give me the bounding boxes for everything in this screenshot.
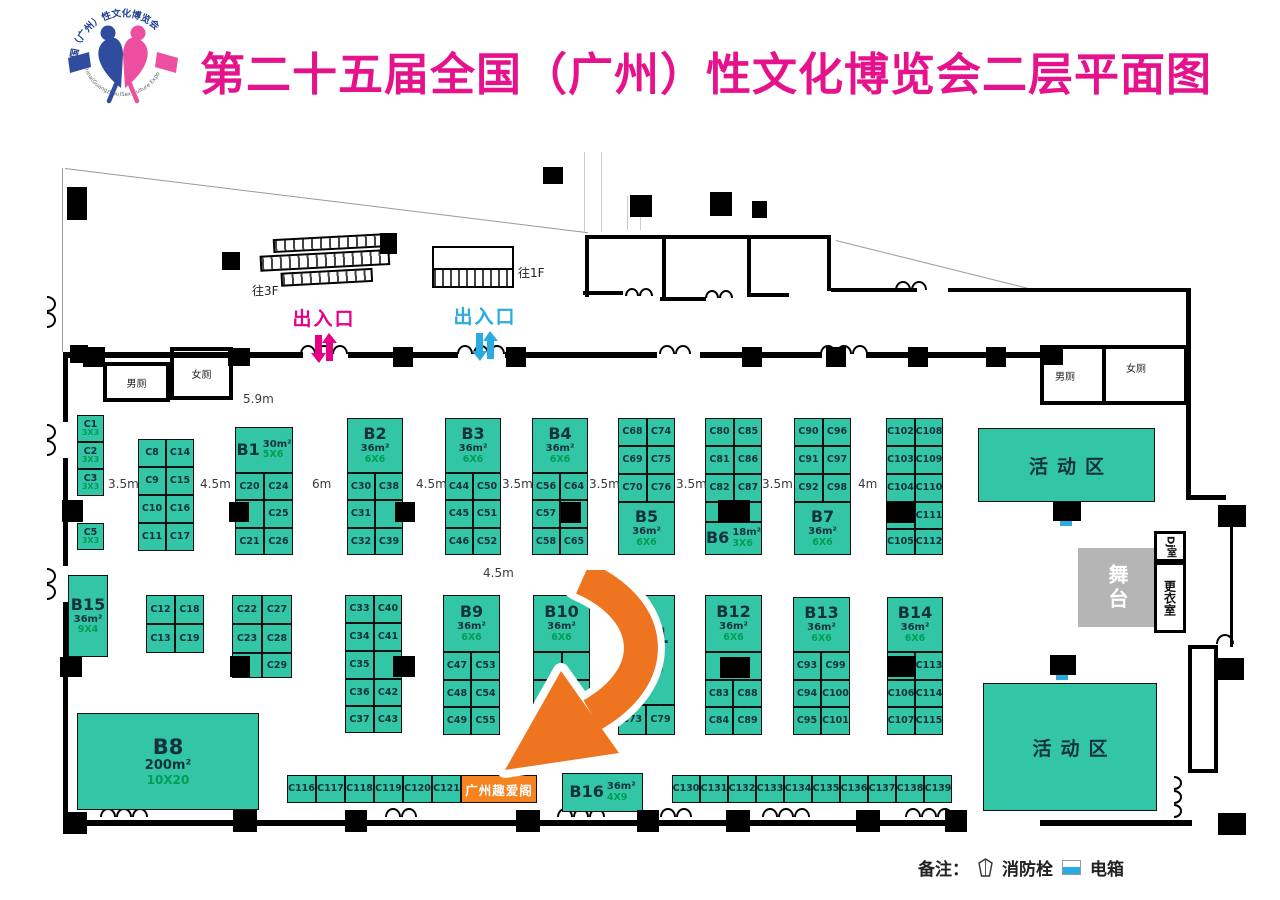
dimension-label: 4m xyxy=(858,477,877,491)
booth-C118: C118 xyxy=(345,775,374,803)
booth-C116: C116 xyxy=(287,775,316,803)
dimension-label: 6m xyxy=(312,477,331,491)
stairs-to-3f-label: 往3F xyxy=(252,282,279,299)
pillar xyxy=(856,810,880,832)
wall-segment xyxy=(747,235,751,297)
booth-C37: C37 xyxy=(345,706,374,733)
booth-C93: C93 xyxy=(793,652,821,680)
changing-room: 更衣室 xyxy=(1154,562,1186,633)
dimension-label: 3.5m xyxy=(589,477,620,491)
booth-C43: C43 xyxy=(374,706,402,733)
booth-C108: C108 xyxy=(915,418,943,446)
booth-C86: C86 xyxy=(734,446,762,474)
booth-C85: C85 xyxy=(734,418,762,446)
pillar xyxy=(222,252,240,270)
booth-C134: C134 xyxy=(784,775,812,803)
activity-area: 活动区 xyxy=(978,428,1155,502)
electric-box-icon xyxy=(1062,860,1081,875)
booth-B2: B236m²6X6 xyxy=(347,418,403,473)
door-arc xyxy=(762,808,778,817)
activity-area: 活动区 xyxy=(983,683,1157,811)
door-arc xyxy=(47,296,56,312)
door-arc xyxy=(659,345,675,354)
pillar xyxy=(726,810,750,832)
dimension-label: 3.5m xyxy=(676,477,707,491)
booth-C70: C70 xyxy=(618,474,647,502)
electric-box-marker xyxy=(1056,675,1068,680)
wall-line xyxy=(65,168,588,233)
wall-segment xyxy=(662,235,666,301)
booth-C10: C10 xyxy=(138,495,166,523)
booth-C92: C92 xyxy=(794,474,823,502)
door-arc xyxy=(1174,776,1182,790)
booth-C12: C12 xyxy=(146,595,175,624)
toilet-label: 男厕 xyxy=(127,375,147,390)
booth-C27: C27 xyxy=(262,595,292,624)
wall-segment xyxy=(1186,495,1226,500)
toilet-women-right-label: 女厕 xyxy=(1126,360,1146,375)
booth-C56: C56 xyxy=(532,473,560,500)
wall-line xyxy=(836,240,1034,290)
booth-C30: C30 xyxy=(347,473,375,500)
booth-C138: C138 xyxy=(896,775,924,803)
booth-B14: B1436m²6X6 xyxy=(887,597,943,652)
pillar xyxy=(986,347,1006,367)
booth-C69: C69 xyxy=(618,446,647,474)
wall-segment xyxy=(63,352,68,422)
pillar xyxy=(630,195,652,217)
booth-C23: C23 xyxy=(232,624,262,653)
booth-C9: C9 xyxy=(138,467,166,495)
booth-B15: B1536m²9X4 xyxy=(68,575,108,657)
wall-segment xyxy=(747,293,789,297)
booth-C42: C42 xyxy=(374,679,402,706)
pillar xyxy=(228,348,250,366)
booth-C106: C106 xyxy=(887,680,915,707)
door-arc xyxy=(401,808,417,817)
door-arc xyxy=(911,281,927,290)
door-arcs xyxy=(895,281,927,290)
booth-C46: C46 xyxy=(445,528,473,555)
pillar xyxy=(380,233,397,254)
booth-B1: B130m²5X6 xyxy=(235,427,293,473)
booth-C11: C11 xyxy=(138,523,166,551)
booth-C19: C19 xyxy=(175,624,204,653)
pillar xyxy=(561,502,581,523)
dimension-label: 4.5m xyxy=(416,477,447,491)
booth-C91: C91 xyxy=(794,446,823,474)
booth-C52: C52 xyxy=(473,528,501,555)
booth-C33: C33 xyxy=(345,595,374,623)
pillar xyxy=(1218,813,1246,835)
booth-C15: C15 xyxy=(166,467,194,495)
pillar xyxy=(1053,502,1081,521)
toilet-men-left: 男厕 xyxy=(103,362,170,402)
booth-C135: C135 xyxy=(812,775,840,803)
wall-segment xyxy=(1102,345,1106,405)
pillar xyxy=(720,657,750,678)
door-arc xyxy=(1216,634,1234,644)
wall-segment xyxy=(1230,527,1233,647)
booth-C83: C83 xyxy=(705,680,733,707)
pillar xyxy=(752,201,767,218)
booth-C75: C75 xyxy=(647,446,675,474)
booth-C17: C17 xyxy=(166,523,194,551)
pillar xyxy=(229,502,249,522)
door-arc xyxy=(794,808,810,817)
booth-B12: B1236m²6X6 xyxy=(705,595,762,652)
booth-C57: C57 xyxy=(532,500,560,528)
wall-segment xyxy=(1040,820,1190,826)
booth-C76: C76 xyxy=(647,474,675,502)
booth-C38: C38 xyxy=(375,473,403,500)
wall-segment xyxy=(505,352,657,358)
booth-C132: C132 xyxy=(728,775,756,803)
booth-C101: C101 xyxy=(821,707,850,735)
booth-C139: C139 xyxy=(924,775,952,803)
booth-C32: C32 xyxy=(347,528,375,555)
wall-segment xyxy=(585,235,589,297)
entrance-left-arrow-icon xyxy=(311,331,337,365)
toilet-men-right-label: 男厕 xyxy=(1055,368,1075,383)
floor-plan-canvas: 全国（广州）性文化博览会 China(Guangzhou)Sex Culture… xyxy=(0,0,1280,900)
booth-C133: C133 xyxy=(756,775,784,803)
wall-line xyxy=(627,196,628,230)
pillar xyxy=(637,810,659,832)
pillar xyxy=(63,812,87,834)
booth-B5: B536m²6X6 xyxy=(618,502,675,555)
booth-C20: C20 xyxy=(235,473,264,500)
booth-C98: C98 xyxy=(823,474,851,502)
wall-segment xyxy=(866,352,1040,358)
booth-C39: C39 xyxy=(375,528,403,555)
pillar xyxy=(516,810,540,832)
wall-line xyxy=(62,168,63,352)
door-arc xyxy=(1174,790,1182,804)
booth-C29: C29 xyxy=(262,653,292,678)
dimension-label: 4.5m xyxy=(200,477,231,491)
door-arc xyxy=(639,288,653,296)
legend-title: 备注： xyxy=(918,855,969,880)
door-arcs xyxy=(762,808,810,817)
entrance-right: 出入口 xyxy=(445,302,525,363)
booth-C1: C13X3 xyxy=(77,415,104,442)
booth-C103: C103 xyxy=(886,446,915,474)
fire-hydrant-icon xyxy=(978,858,993,877)
pillar xyxy=(62,500,83,522)
booth-C28: C28 xyxy=(262,624,292,653)
booth-B13: B1336m²6X6 xyxy=(793,597,850,652)
booth-C64: C64 xyxy=(560,473,588,500)
booth-C8: C8 xyxy=(138,439,166,467)
booth-C114: C114 xyxy=(915,680,943,707)
toilet-label: 女厕 xyxy=(192,366,212,381)
pillar xyxy=(1050,655,1076,675)
booth-C99: C99 xyxy=(821,652,850,680)
door-arcs xyxy=(1216,634,1234,644)
door-arcs xyxy=(625,288,653,296)
pillar xyxy=(718,500,750,522)
door-arc xyxy=(852,345,868,354)
entrance-left: 出入口 xyxy=(284,304,364,365)
entrance-right-label: 出入口 xyxy=(453,302,516,329)
booth-C107: C107 xyxy=(887,707,915,735)
booth-C68: C68 xyxy=(618,418,647,446)
pillar xyxy=(543,167,563,184)
booth-C82: C82 xyxy=(705,474,734,502)
booth-C94: C94 xyxy=(793,680,821,707)
pillar xyxy=(1040,348,1063,365)
door-arc xyxy=(47,584,56,600)
booth-B3: B336m²6X6 xyxy=(445,418,501,473)
booth-C88: C88 xyxy=(733,680,762,707)
booth-B8: B8200m²10X20 xyxy=(77,713,259,810)
booth-C50: C50 xyxy=(473,473,501,500)
door-arcs xyxy=(47,424,56,456)
door-arcs xyxy=(385,808,417,817)
door-arc xyxy=(47,568,56,584)
pillar xyxy=(1216,658,1244,680)
booth-C112: C112 xyxy=(915,529,943,555)
wall-segment xyxy=(63,820,953,826)
wall-segment xyxy=(660,297,706,301)
door-arc xyxy=(47,312,56,328)
booth-C80: C80 xyxy=(705,418,734,446)
pillar xyxy=(826,347,846,367)
booth-C74: C74 xyxy=(647,418,675,446)
pillar xyxy=(1218,505,1246,527)
pillar xyxy=(83,347,105,367)
booth-C65: C65 xyxy=(560,528,588,555)
booth-C115: C115 xyxy=(915,707,943,735)
booth-C36: C36 xyxy=(345,679,374,706)
stage-area: 舞台 xyxy=(1078,548,1157,627)
pillar xyxy=(710,192,732,216)
legend-electric-label: 电箱 xyxy=(1090,855,1124,880)
pillar xyxy=(233,810,257,832)
door-arc xyxy=(905,808,921,817)
pillar xyxy=(886,502,915,523)
door-arcs xyxy=(659,345,691,354)
booth-C34: C34 xyxy=(345,623,374,651)
booth-C16: C16 xyxy=(166,495,194,523)
booth-C119: C119 xyxy=(374,775,403,803)
dj-room-label: Dj室 xyxy=(1163,536,1178,558)
booth-C89: C89 xyxy=(733,707,762,735)
booth-C120: C120 xyxy=(403,775,432,803)
door-arc xyxy=(778,808,794,817)
stairs-to-1f xyxy=(432,246,514,288)
door-arcs xyxy=(1174,776,1182,818)
door-arc xyxy=(47,424,56,440)
wall-segment xyxy=(1186,288,1191,500)
booth-C109: C109 xyxy=(915,446,943,474)
pillar xyxy=(60,657,82,677)
booth-C97: C97 xyxy=(823,446,851,474)
booth-C102: C102 xyxy=(886,418,915,446)
pillar xyxy=(742,347,762,367)
booth-C84: C84 xyxy=(705,707,733,735)
stair-shaft xyxy=(1188,645,1218,773)
booth-C95: C95 xyxy=(793,707,821,735)
pillar xyxy=(67,187,87,220)
booth-C13: C13 xyxy=(146,624,175,653)
pillar xyxy=(908,347,928,367)
booth-C35: C35 xyxy=(345,651,374,679)
booth-C24: C24 xyxy=(264,473,293,500)
booth-C45: C45 xyxy=(445,500,473,528)
dimension-label: 5.9m xyxy=(243,392,274,406)
wall-segment xyxy=(948,288,1190,292)
booth-C117: C117 xyxy=(316,775,345,803)
booth-C105: C105 xyxy=(886,529,915,555)
booth-C18: C18 xyxy=(175,595,204,624)
dimension-label: 3.5m xyxy=(108,477,139,491)
pillar xyxy=(393,347,413,367)
booth-C41: C41 xyxy=(374,623,402,651)
booth-C26: C26 xyxy=(264,528,293,555)
pillar xyxy=(395,502,415,522)
booth-C25: C25 xyxy=(264,500,293,528)
booth-C40: C40 xyxy=(374,595,402,623)
booth-C110: C110 xyxy=(915,474,943,502)
wall-segment xyxy=(585,235,831,239)
booth-C44: C44 xyxy=(445,473,473,500)
booth-C58: C58 xyxy=(532,528,560,555)
booth-C111: C111 xyxy=(915,502,943,529)
door-arc xyxy=(675,345,691,354)
dj-room: Dj室 xyxy=(1154,531,1186,562)
door-arc xyxy=(705,290,719,298)
wall-segment xyxy=(583,291,623,295)
booth-B6: B618m²3X6 xyxy=(705,522,762,555)
door-arc xyxy=(719,290,733,298)
booth-C96: C96 xyxy=(823,418,851,446)
floor-plan: 女厕 男厕 男厕 女厕 舞台 Dj室 更衣室 往3F 往1F xyxy=(0,0,1280,900)
booth-C90: C90 xyxy=(794,418,823,446)
legend-fire-label: 消防栓 xyxy=(1002,855,1053,880)
stairs-to-1f-label: 往1F xyxy=(518,264,545,281)
booth-C31: C31 xyxy=(347,500,375,528)
dimension-label: 3.5m xyxy=(762,477,793,491)
changing-room-label: 更衣室 xyxy=(1162,580,1179,616)
expo-logo: 全国（广州）性文化博览会 China(Guangzhou)Sex Culture… xyxy=(62,6,184,118)
electric-box-marker xyxy=(1060,521,1072,526)
pillar xyxy=(887,656,916,677)
door-arc xyxy=(1174,804,1182,818)
door-arc xyxy=(47,440,56,456)
booth-C21: C21 xyxy=(235,528,264,555)
booth-C14: C14 xyxy=(166,439,194,467)
entrance-right-arrow-icon xyxy=(472,329,498,363)
booth-C2: C23X3 xyxy=(77,442,104,469)
door-arcs xyxy=(705,290,733,298)
dimension-label: 3.5m xyxy=(502,477,533,491)
wall-line xyxy=(584,152,585,232)
booth-B7: B736m²6X6 xyxy=(794,502,851,555)
pillar xyxy=(393,656,415,677)
booth-C137: C137 xyxy=(868,775,896,803)
door-arc xyxy=(921,808,937,817)
door-arc xyxy=(385,808,401,817)
legend: 备注： 消防栓 电箱 xyxy=(918,855,1124,880)
booth-C104: C104 xyxy=(886,474,915,502)
booth-C5: C53X3 xyxy=(77,523,104,550)
pillar xyxy=(230,656,250,677)
highlight-arrow xyxy=(455,570,705,810)
booth-B4: B436m²6X6 xyxy=(532,418,588,473)
booth-C87: C87 xyxy=(734,474,762,502)
booth-C51: C51 xyxy=(473,500,501,528)
entrance-left-label: 出入口 xyxy=(292,304,355,331)
door-arcs xyxy=(47,296,56,328)
door-arcs xyxy=(47,568,56,600)
booth-C100: C100 xyxy=(821,680,850,707)
pillar xyxy=(945,810,967,832)
booth-C81: C81 xyxy=(705,446,734,474)
pillar xyxy=(345,810,367,832)
booth-C113: C113 xyxy=(915,652,943,680)
booth-C22: C22 xyxy=(232,595,262,624)
door-arc xyxy=(625,288,639,296)
booth-C3: C33X3 xyxy=(77,469,104,496)
booth-C136: C136 xyxy=(840,775,868,803)
stage-label: 舞台 xyxy=(1103,564,1132,612)
door-arc xyxy=(895,281,911,290)
wall-segment xyxy=(827,235,831,291)
wall-line xyxy=(601,152,602,232)
